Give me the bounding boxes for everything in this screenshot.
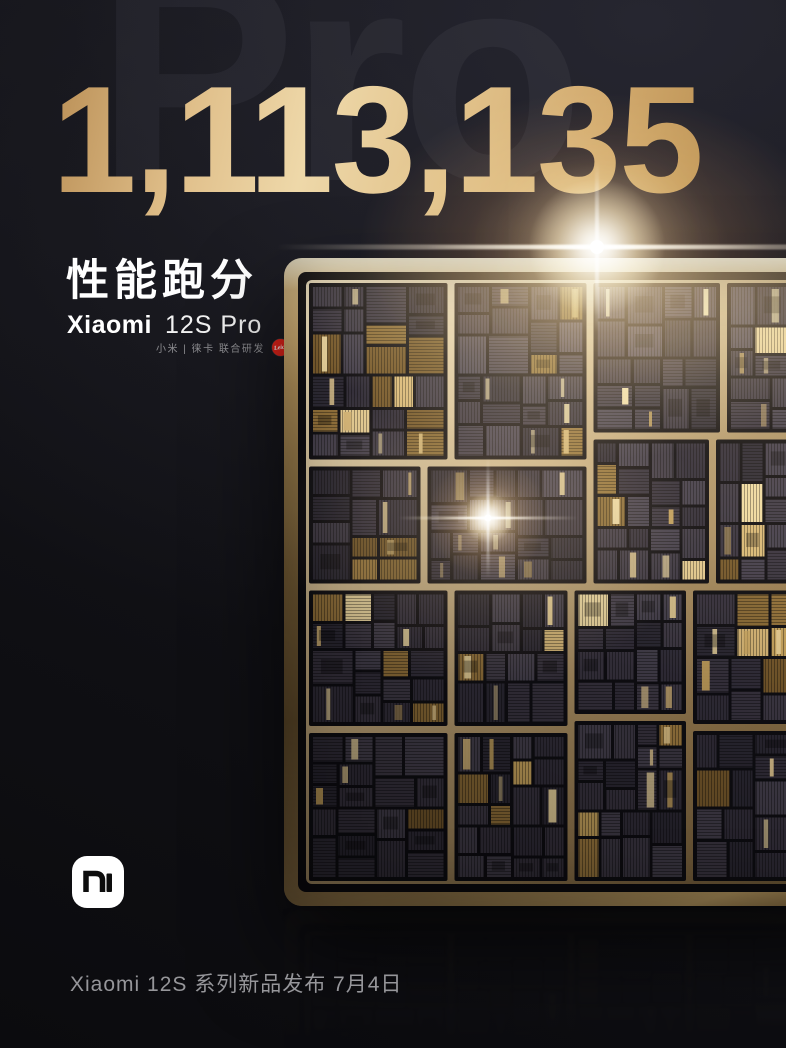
mi-logo bbox=[72, 856, 124, 908]
flare-ray bbox=[427, 246, 767, 249]
collab-row: 小米 | 徕卡 联合研发 Leica bbox=[156, 339, 289, 356]
collab-text: 小米 | 徕卡 联合研发 bbox=[156, 340, 265, 355]
score-number: 1,113,135 bbox=[52, 64, 702, 216]
soc-die-photo bbox=[284, 258, 786, 906]
flare-streak-horizontal bbox=[277, 245, 786, 250]
flare-ray bbox=[427, 246, 767, 249]
mi-logo-glyph bbox=[72, 856, 124, 908]
footer-caption: Xiaomi 12S 系列新品发布 7月4日 bbox=[70, 968, 402, 998]
brand-row: Xiaomi 12S Pro bbox=[67, 311, 262, 340]
score-label: 性能跑分 bbox=[66, 246, 258, 308]
brand-wordmark: Xiaomi bbox=[67, 311, 152, 340]
flare-core bbox=[590, 240, 604, 254]
model-name: 12S Pro bbox=[165, 311, 262, 340]
poster-canvas: Pro 1,113,135 性能跑分 Xiaomi 12S Pro 小米 | 徕… bbox=[0, 0, 786, 1048]
